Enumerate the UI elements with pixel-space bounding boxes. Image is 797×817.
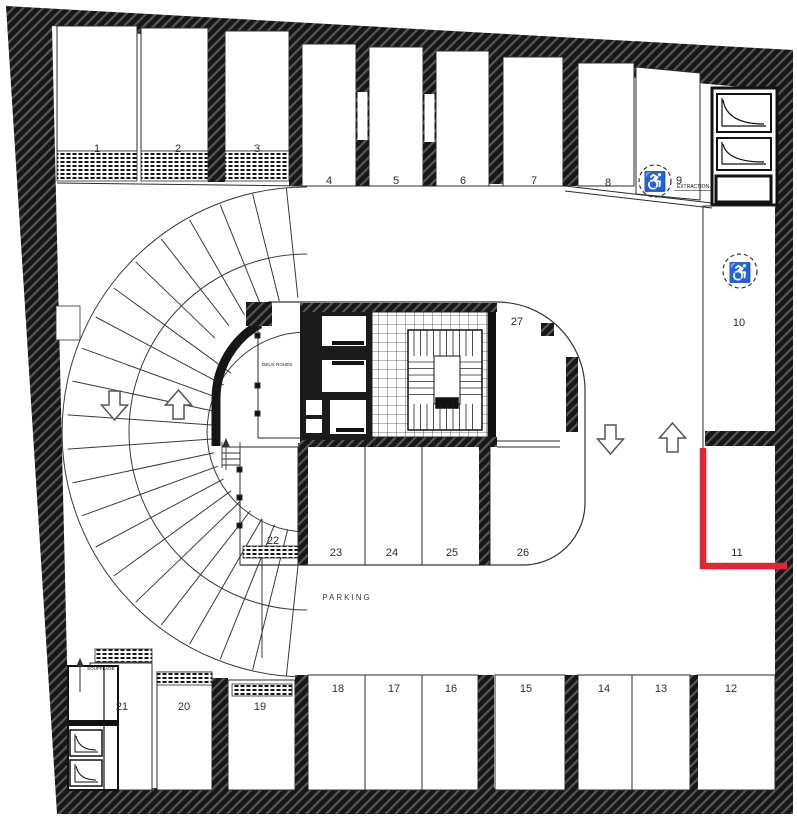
stair-lobby <box>372 312 496 437</box>
parking-floor-plan: ♿ ♿ 1 2 3 4 5 6 7 8 9 10 11 12 13 14 15 … <box>0 0 797 817</box>
hatch-strips-top <box>57 151 289 181</box>
space-label-22: 22 <box>267 535 279 547</box>
down-arrow-icon <box>598 425 624 454</box>
space-label-3: 3 <box>254 143 260 155</box>
extraction-label: EXTRACTION <box>677 184 710 190</box>
helical-ramp <box>62 187 307 677</box>
space-label-4: 4 <box>326 175 332 187</box>
space-label-1: 1 <box>94 143 100 155</box>
space-label-12: 12 <box>725 683 737 695</box>
space-label-5: 5 <box>393 175 399 187</box>
small-stair-icon <box>222 439 240 470</box>
island-spaces <box>237 441 560 565</box>
extraction-duct-shaft <box>712 88 777 205</box>
soufflage-label: SOUFFLAGE <box>87 666 115 671</box>
space-label-23: 23 <box>330 547 342 559</box>
space-label-17: 17 <box>388 683 400 695</box>
space-label-19: 19 <box>254 701 266 713</box>
space-label-13: 13 <box>655 683 667 695</box>
soufflage-duct-shaft <box>68 659 118 790</box>
space-label-26: 26 <box>517 547 529 559</box>
space-label-7: 7 <box>531 175 537 187</box>
wheelchair-icon: ♿ <box>728 261 752 284</box>
space-label-8: 8 <box>605 177 611 189</box>
space-label-18: 18 <box>332 683 344 695</box>
down-arrow-icon <box>102 391 128 420</box>
space-label-10: 10 <box>733 317 745 329</box>
space-label-24: 24 <box>386 547 398 559</box>
space-11-highlight[interactable] <box>703 448 787 566</box>
space-label-27: 27 <box>511 316 523 328</box>
staircase <box>408 330 482 430</box>
deux-roues-label: DEUX ROUES <box>262 362 292 367</box>
aisle-lines-top <box>57 183 712 208</box>
up-arrow-icon <box>166 390 192 419</box>
parking-label: PARKING <box>322 593 371 602</box>
space-label-21: 21 <box>116 701 128 713</box>
wheelchair-icon: ♿ <box>643 170 667 193</box>
space-label-14: 14 <box>598 683 610 695</box>
space-label-16: 16 <box>445 683 457 695</box>
space-label-20: 20 <box>178 701 190 713</box>
space-label-15: 15 <box>520 683 532 695</box>
elevator-core <box>300 312 372 440</box>
floor-plan-drawing: ♿ ♿ 1 2 3 4 5 6 7 8 9 10 11 12 13 14 15 … <box>0 0 797 817</box>
wall-strip-above-11 <box>705 431 777 446</box>
space-label-25: 25 <box>446 547 458 559</box>
space-label-6: 6 <box>460 175 466 187</box>
up-arrow-icon <box>660 423 686 452</box>
space-label-2: 2 <box>175 143 181 155</box>
space-label-11: 11 <box>731 547 742 559</box>
